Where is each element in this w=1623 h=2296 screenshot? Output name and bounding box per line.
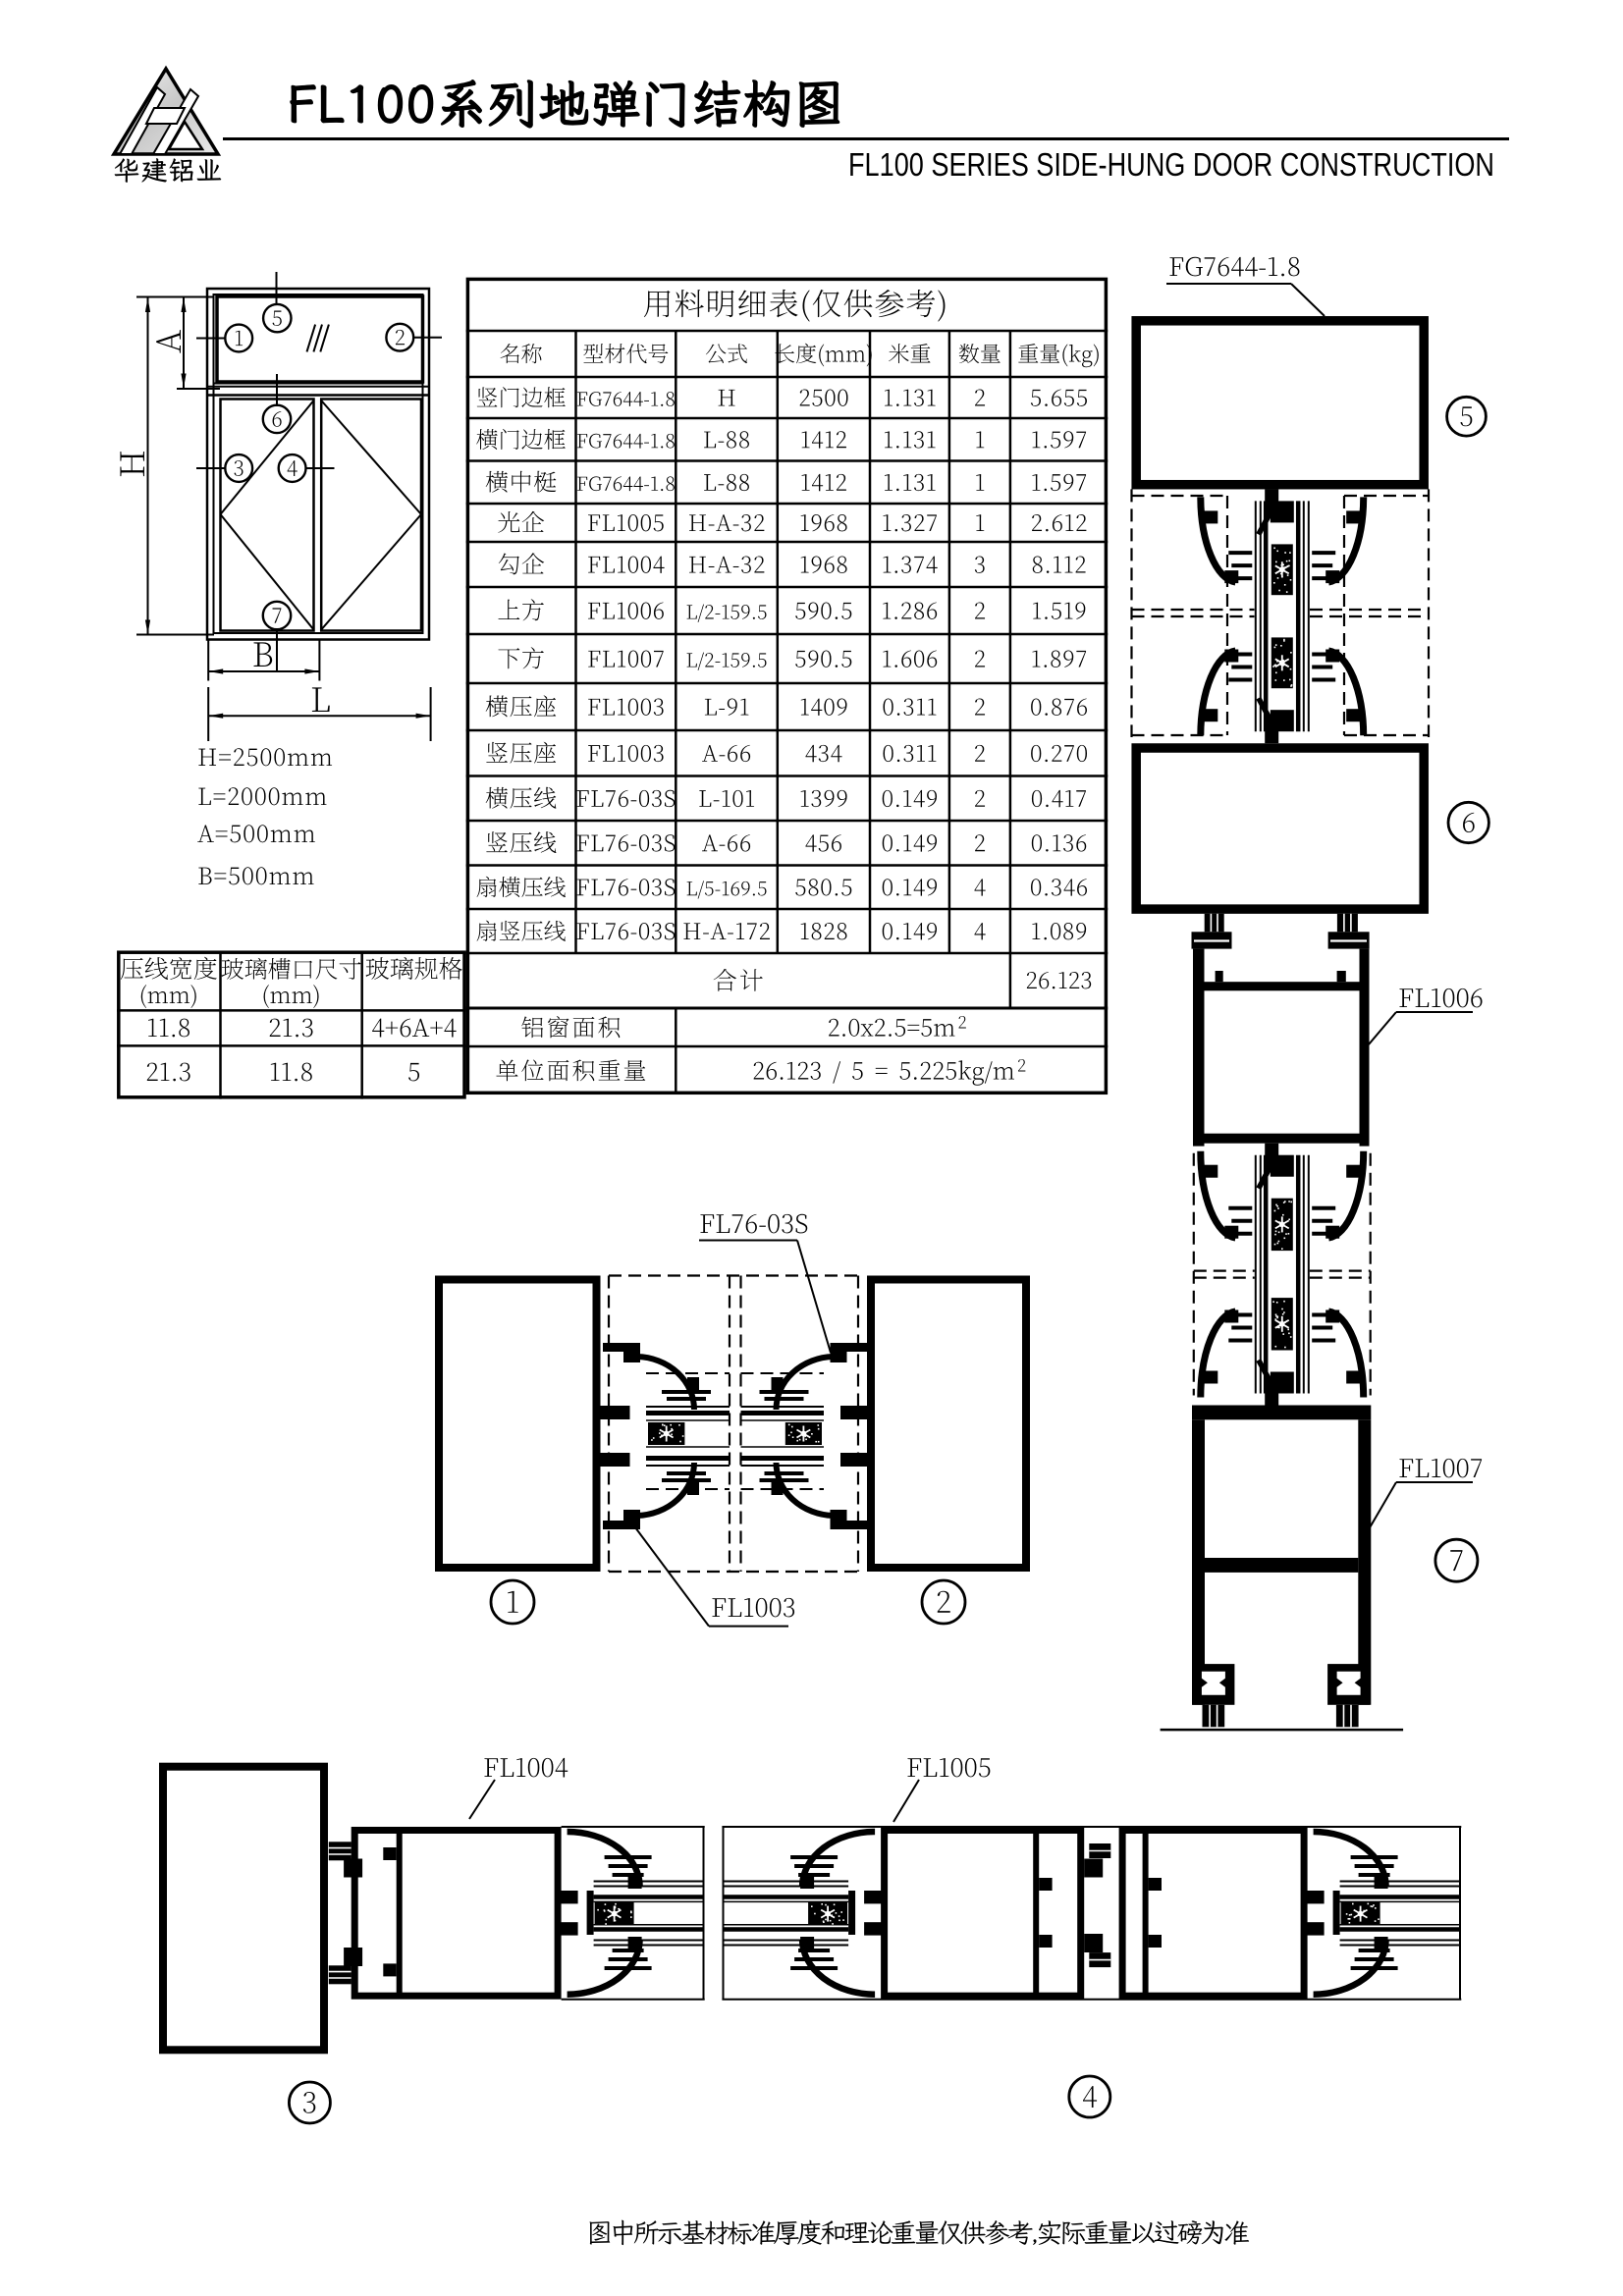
svg-text:FL100 SERIES SIDE-HUNG DOOR CO: FL100 SERIES SIDE-HUNG DOOR CONSTRUCTION (848, 146, 1494, 183)
